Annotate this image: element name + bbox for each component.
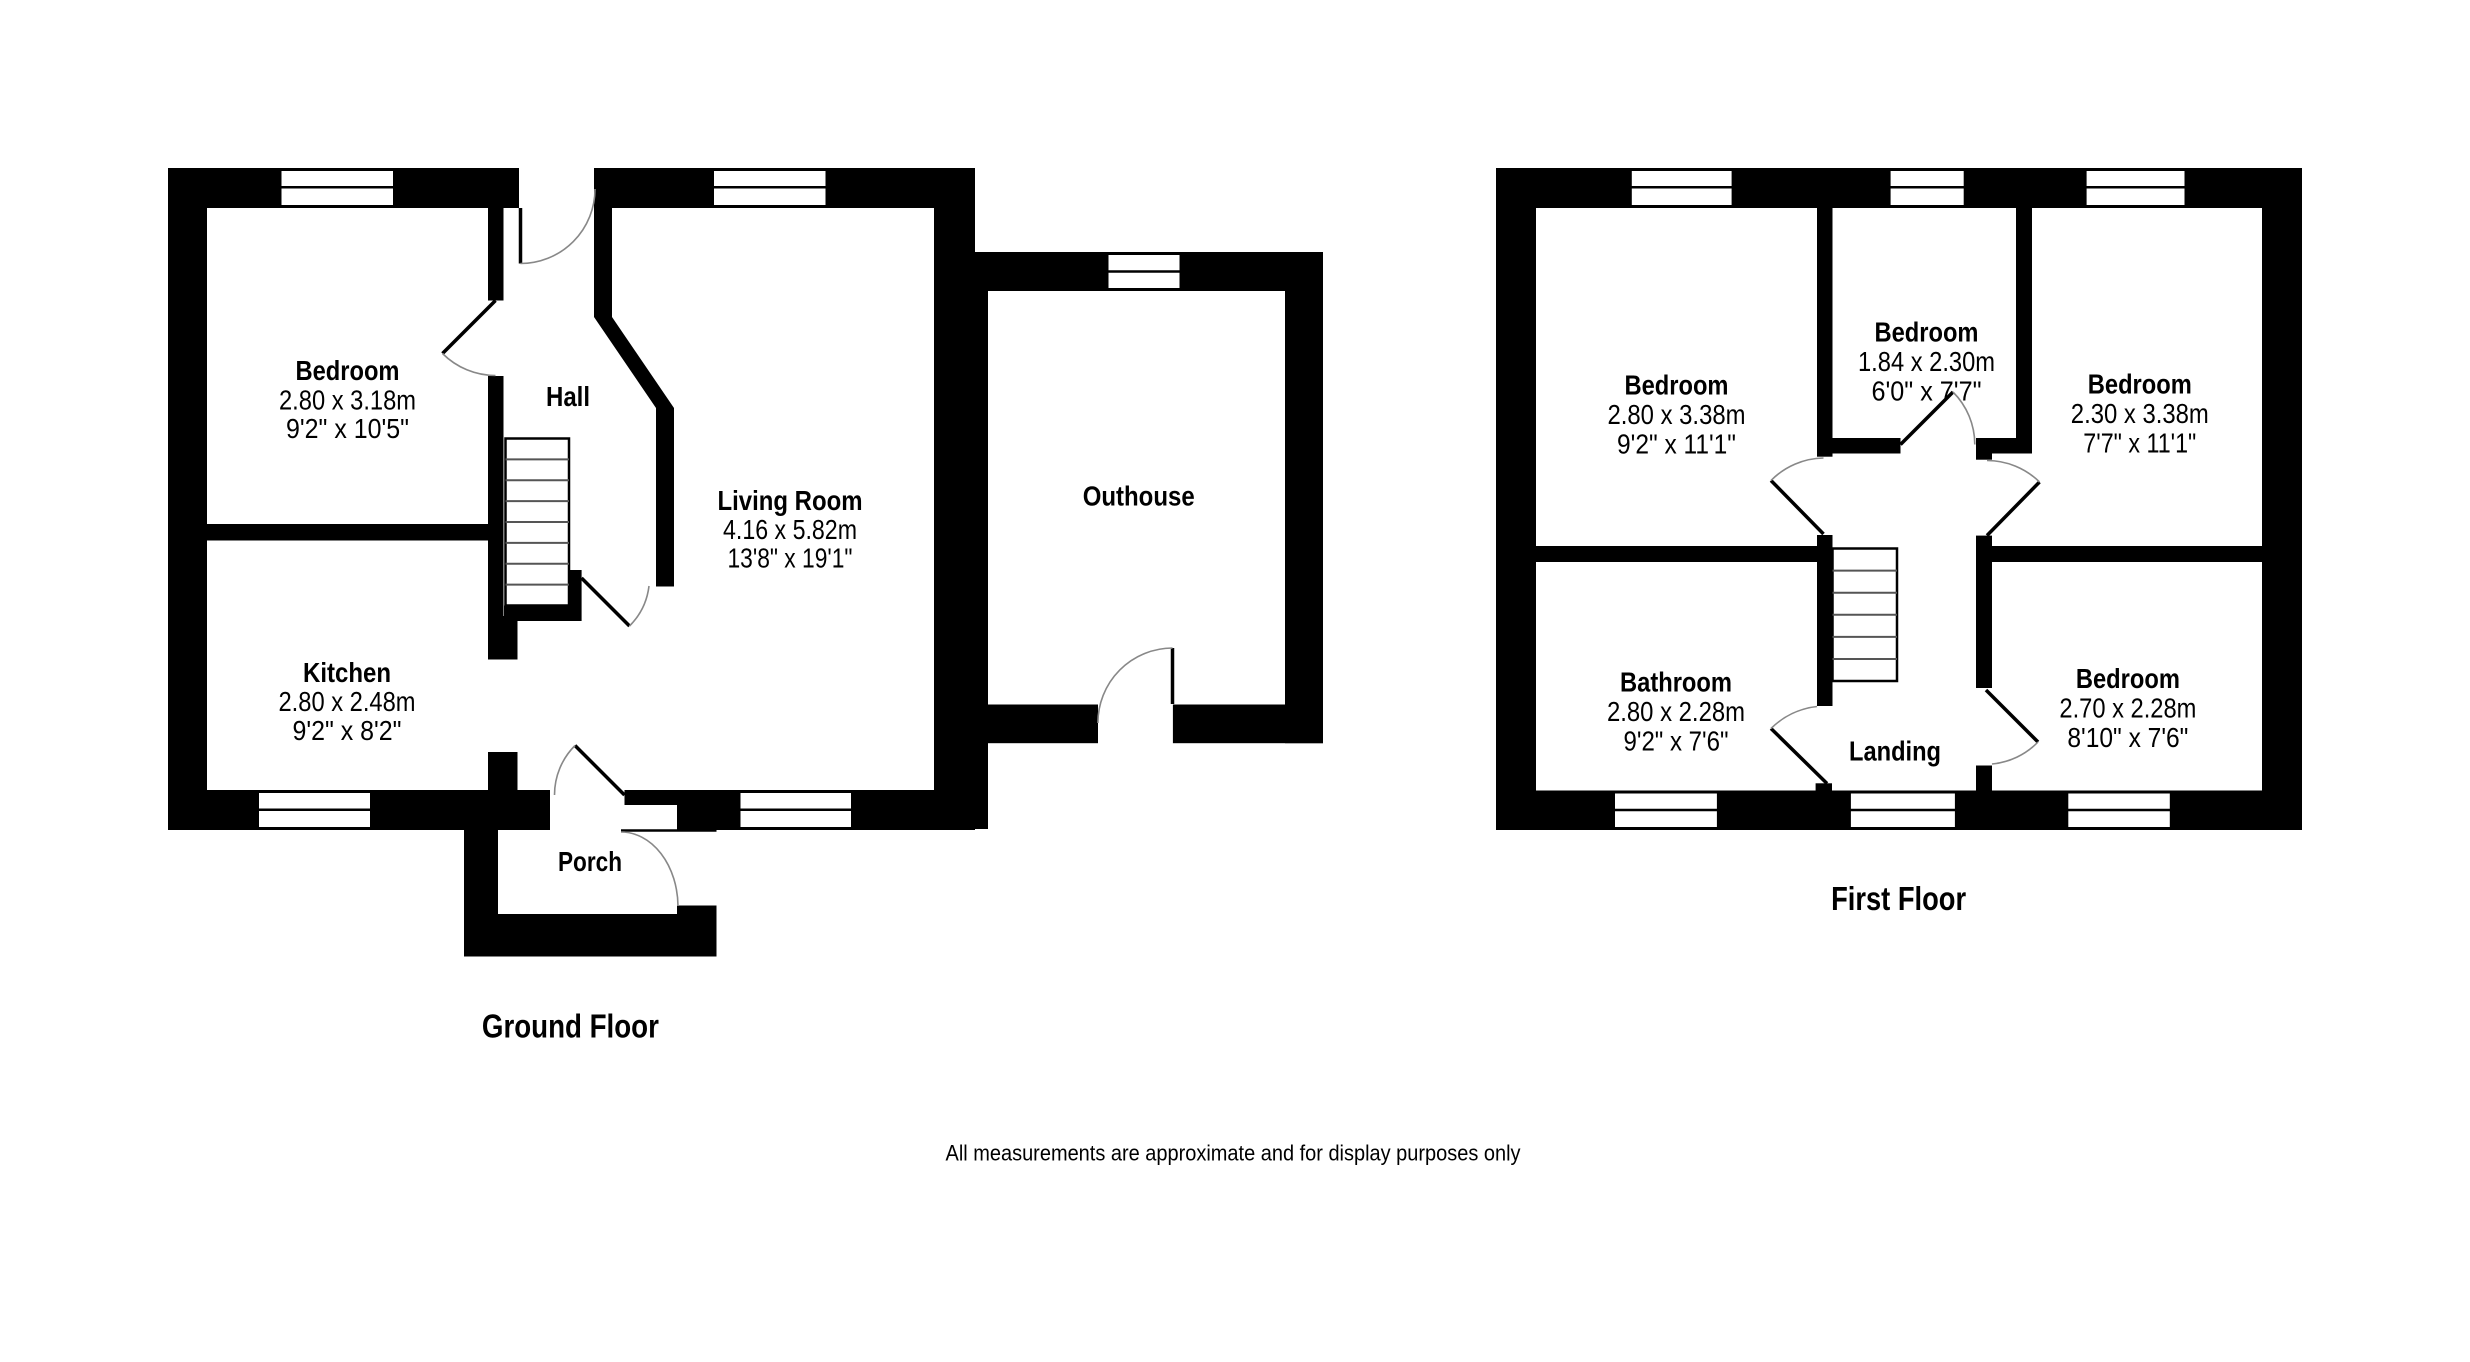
svg-text:2.80 x 2.48m: 2.80 x 2.48m: [279, 686, 416, 717]
svg-text:4.16 x 5.82m: 4.16 x 5.82m: [723, 514, 857, 545]
svg-text:Bedroom: Bedroom: [2088, 369, 2192, 400]
svg-text:1.84 x 2.30m: 1.84 x 2.30m: [1858, 346, 1995, 377]
svg-text:9'2" x 7'6": 9'2" x 7'6": [1624, 726, 1729, 757]
svg-text:2.30 x 3.38m: 2.30 x 3.38m: [2071, 398, 2209, 429]
svg-text:Porch: Porch: [558, 846, 622, 877]
svg-text:9'2" x 8'2": 9'2" x 8'2": [293, 715, 402, 746]
svg-text:All measurements are approxima: All measurements are approximate and for…: [946, 1141, 1521, 1166]
svg-text:9'2" x 10'5": 9'2" x 10'5": [286, 413, 409, 444]
svg-text:8'10" x 7'6": 8'10" x 7'6": [2067, 722, 2188, 753]
svg-text:Kitchen: Kitchen: [303, 657, 391, 688]
svg-text:7'7" x 11'1": 7'7" x 11'1": [2083, 428, 2196, 459]
svg-text:First Floor: First Floor: [1831, 880, 1966, 917]
svg-text:Bedroom: Bedroom: [1875, 317, 1979, 348]
svg-text:Ground Floor: Ground Floor: [482, 1008, 659, 1045]
svg-text:2.80 x 3.38m: 2.80 x 3.38m: [1608, 399, 1746, 430]
svg-text:Bedroom: Bedroom: [1625, 370, 1729, 401]
svg-text:2.70 x 2.28m: 2.70 x 2.28m: [2059, 692, 2196, 723]
svg-text:Outhouse: Outhouse: [1083, 481, 1195, 512]
svg-text:Bedroom: Bedroom: [296, 355, 400, 386]
svg-text:Landing: Landing: [1849, 736, 1941, 767]
svg-text:6'0" x 7'7": 6'0" x 7'7": [1872, 376, 1982, 407]
svg-text:Hall: Hall: [546, 381, 590, 412]
svg-text:13'8" x 19'1": 13'8" x 19'1": [728, 543, 853, 574]
svg-text:9'2" x 11'1": 9'2" x 11'1": [1617, 429, 1736, 460]
svg-text:Bedroom: Bedroom: [2076, 663, 2180, 694]
svg-text:2.80 x 3.18m: 2.80 x 3.18m: [279, 385, 416, 416]
svg-text:Living Room: Living Room: [718, 485, 863, 516]
svg-text:Bathroom: Bathroom: [1620, 667, 1732, 698]
svg-text:2.80 x 2.28m: 2.80 x 2.28m: [1607, 696, 1745, 727]
